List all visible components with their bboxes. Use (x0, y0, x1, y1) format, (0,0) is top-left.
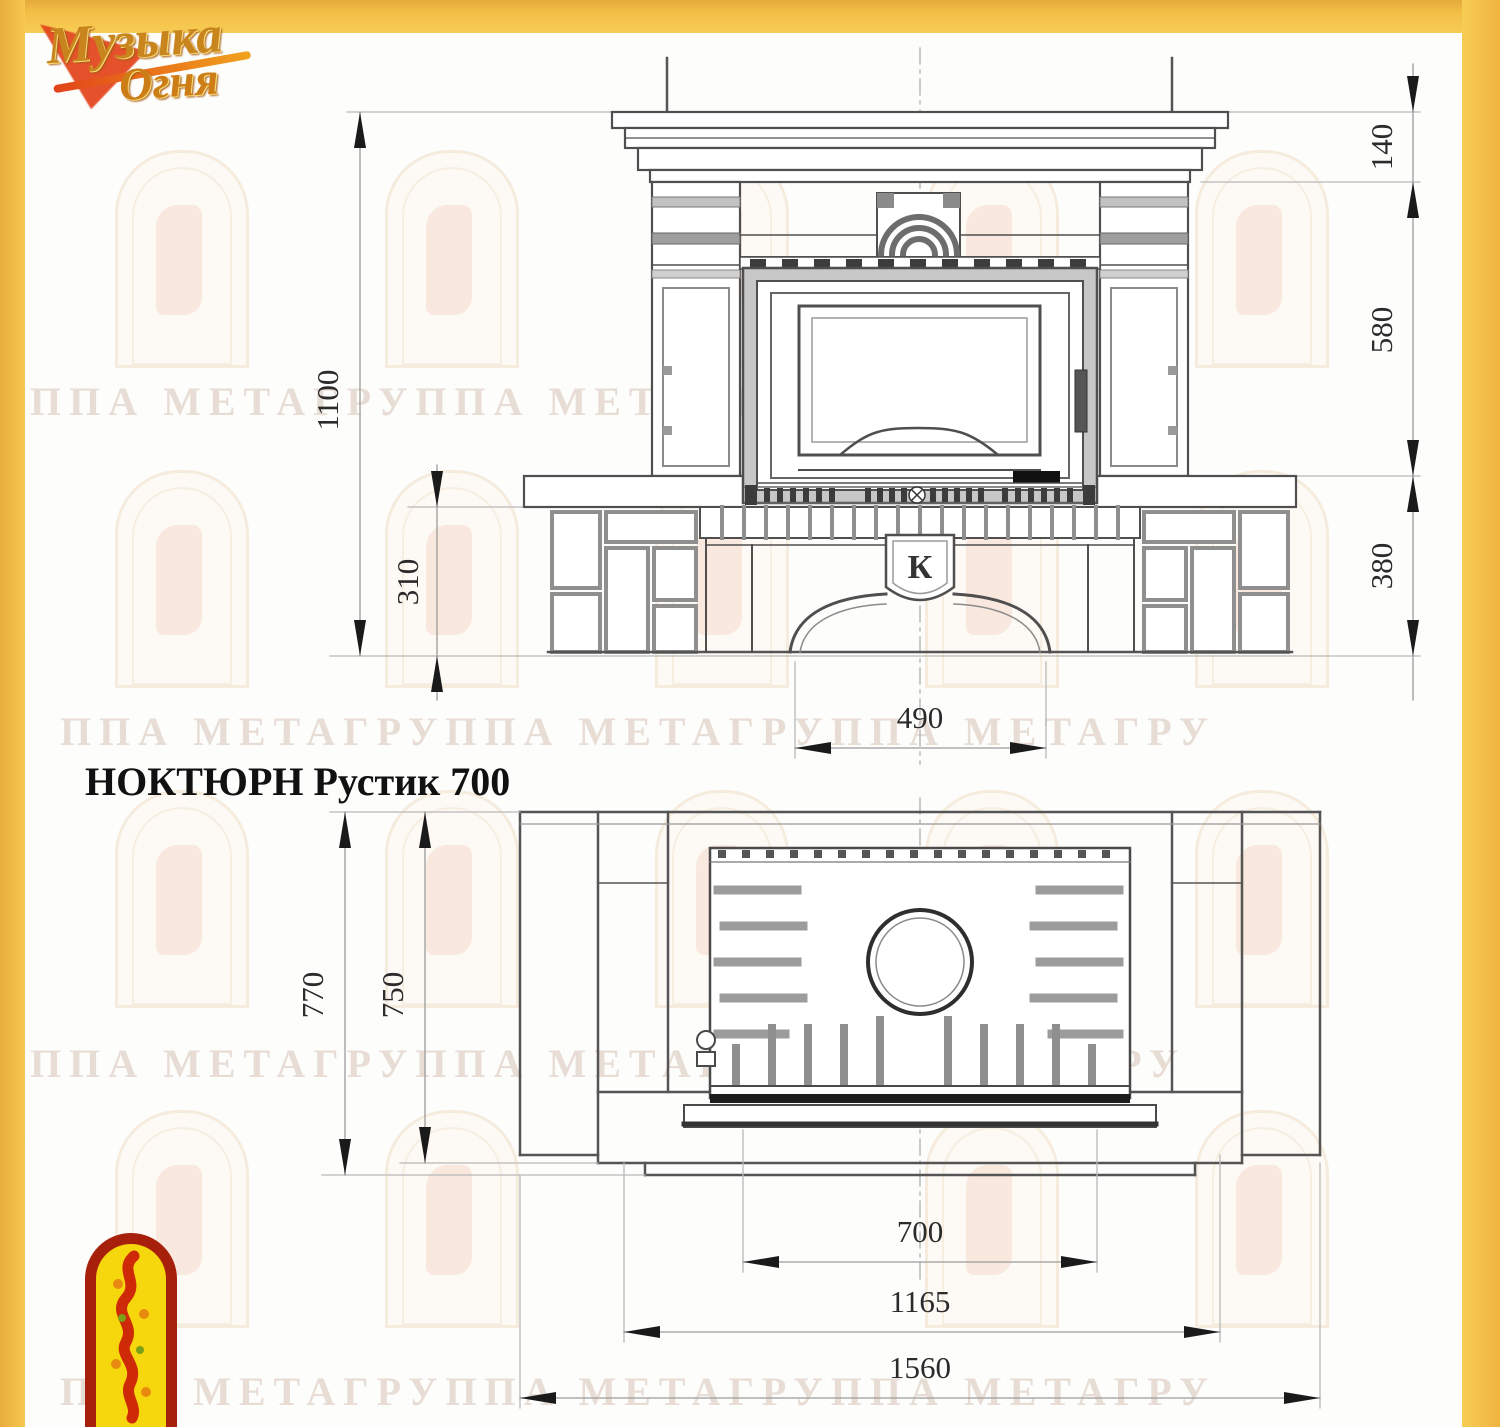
fan-medallion-icon (877, 193, 960, 257)
masonry-right (1144, 512, 1288, 652)
frame-right-bar (1462, 0, 1500, 1427)
plan-firebox (697, 848, 1130, 1103)
left-column (652, 182, 740, 476)
masonry-left (552, 512, 696, 652)
dentil-course (700, 507, 1140, 538)
firebox (743, 268, 1097, 503)
dim-plan-firebox-width: 700 (897, 1214, 944, 1249)
door-hinge (697, 1031, 715, 1049)
dim-front-mantel-top: 140 (1364, 124, 1399, 171)
page-title: НОКТЮРН Рустик 700 (85, 759, 510, 804)
ash-lip (1013, 471, 1060, 483)
flue-outlet-circle (868, 910, 972, 1014)
drawing-page: ППА МЕТАГРУППА МЕТАГРУППА МЕТАГРУ ППА МЕ… (0, 0, 1500, 1427)
dim-front-opening: 490 (897, 700, 944, 735)
dim-front-base: 380 (1364, 543, 1399, 590)
keystone-letter: К (908, 549, 933, 586)
door-handle (1075, 370, 1087, 432)
fireplace-technical-drawing: К 1100 310 (0, 0, 1500, 1427)
dim-front-total-height: 1100 (310, 370, 345, 431)
dim-plan-width-total: 1560 (889, 1350, 951, 1385)
fire-figure-icon (96, 1244, 166, 1424)
dim-plan-depth-inner: 750 (375, 972, 410, 1019)
keystone-shield: К (886, 535, 954, 600)
mantel-cornice (612, 112, 1228, 182)
frame-left-bar (0, 0, 25, 1427)
dim-front-middle: 580 (1364, 307, 1399, 354)
right-column (1100, 182, 1188, 476)
dim-plan-depth-total: 770 (295, 972, 330, 1019)
logo-word-2: Огня (117, 51, 220, 111)
dim-front-hearth: 310 (390, 559, 425, 606)
fire-figure-emblem (85, 1233, 177, 1427)
plan-front-plate (684, 1105, 1156, 1127)
brand-logo: Музыка Огня (18, 0, 286, 143)
dim-plan-body-width: 1165 (890, 1284, 951, 1319)
glass-door (799, 306, 1040, 455)
